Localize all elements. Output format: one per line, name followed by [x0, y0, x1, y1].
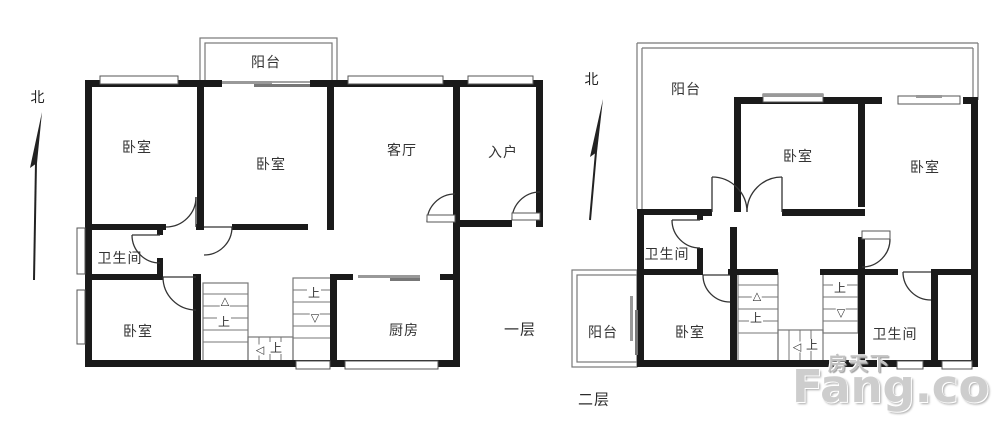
plan1-stair-left-triangle: ◁: [255, 345, 265, 356]
plan2-bedroom-ne-label: 卧室: [910, 157, 940, 177]
plan2-doors: [672, 177, 931, 302]
plan1-stair-up-label-3: 上: [269, 342, 283, 354]
plan2-stair-up-label-2: 上: [833, 282, 847, 294]
plan2-north-label: 北: [585, 69, 600, 89]
plan2-balcony-sw-label: 阳台: [588, 322, 618, 342]
plan1-stair-up-label-2: 上: [307, 287, 321, 299]
plan2-bedroom-s-label: 卧室: [675, 322, 705, 342]
plan2-floor-label: 二层: [578, 389, 610, 410]
plan2-stair-down-triangle: ▽: [836, 308, 846, 319]
plan2-stair-up-label-1: 上: [749, 312, 763, 324]
plan1-balcony-label: 阳台: [251, 52, 281, 72]
plan1-stair-up-triangle: △: [220, 296, 230, 307]
plan1-sliding-doors: [222, 81, 420, 281]
plan1-north-arrow: [30, 112, 42, 280]
plan2-balcony-top-label: 阳台: [671, 79, 701, 99]
plan1-bathroom-label: 卫生间: [98, 248, 143, 268]
plan2-bathroom-e-label: 卫生间: [873, 324, 918, 344]
plan2-bedroom-n-label: 卧室: [783, 146, 813, 166]
plan1-kitchen-label: 厨房: [389, 320, 419, 340]
plan2-north-arrow: [590, 99, 603, 220]
plan2-stair-up-label-3: 上: [805, 339, 819, 351]
plan1-entry-label: 入户: [488, 142, 518, 162]
plan2-stair-up-triangle: △: [752, 291, 762, 302]
plan2-door-leaves: [862, 231, 890, 239]
plan1-stair-up-label-1: 上: [217, 316, 231, 328]
plan1-bedroom-sw-label: 卧室: [123, 321, 153, 341]
plan2-stair-left-triangle: ◁: [792, 342, 802, 353]
plan1-living-label: 客厅: [387, 140, 417, 160]
plan1-floor-label: 一层: [504, 319, 536, 340]
plan1-stair-down-triangle: ▽: [310, 313, 320, 324]
plan1-north-label: 北: [31, 87, 46, 107]
plan1-bedroom-nw-label: 卧室: [122, 137, 152, 157]
plan2-bathroom-w-label: 卫生间: [645, 244, 690, 264]
watermark-en: Fang.com: [792, 360, 992, 413]
floorplan-page: 北 阳台 卧室 卧室 客厅 入户 卫生间 卧室 厨房 一层 △ 上 上 ▽ ◁ …: [0, 0, 992, 426]
plan1-bedroom-n-label: 卧室: [256, 154, 286, 174]
